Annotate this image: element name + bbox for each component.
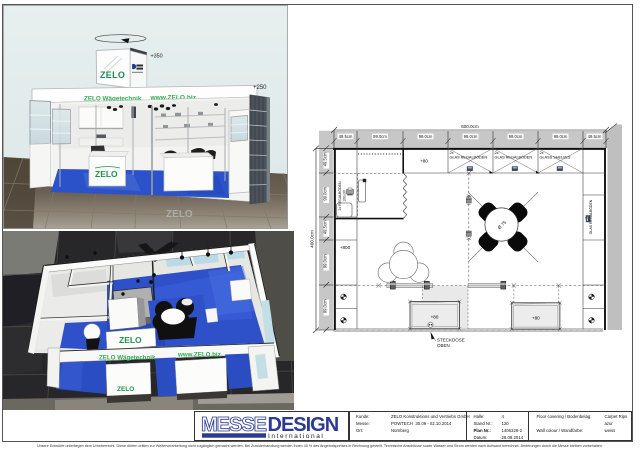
svg-text:ZELO: ZELO (117, 386, 134, 393)
svg-text:99.0cm: 99.0cm (322, 254, 327, 268)
svg-text:99.0cm: 99.0cm (322, 186, 327, 200)
svg-text:ZELO: ZELO (95, 169, 118, 179)
svg-text:ZELO: ZELO (166, 209, 193, 220)
svg-text:+350: +350 (151, 54, 163, 60)
svg-text:49.5cm: 49.5cm (588, 134, 602, 139)
svg-text:GLASS SHELVES: GLASS SHELVES (540, 155, 571, 159)
svg-text:49.5cm: 49.5cm (322, 152, 327, 166)
svg-text:ZELO: ZELO (119, 335, 142, 345)
svg-text:+80: +80 (431, 315, 439, 320)
svg-text:400.0cm: 400.0cm (310, 230, 315, 248)
svg-text:49.5cm: 49.5cm (322, 220, 327, 234)
svg-text:99.0cm: 99.0cm (419, 134, 433, 139)
svg-text:2x REGALBÖDEN: 2x REGALBÖDEN (338, 181, 342, 210)
svg-text:99.0cm: 99.0cm (322, 299, 327, 313)
svg-text:OBEN: OBEN (437, 343, 450, 348)
svg-text:ZELO: ZELO (100, 70, 125, 80)
svg-text:+250: +250 (253, 85, 267, 91)
svg-text:GLAS REGALBÖDEN: GLAS REGALBÖDEN (450, 155, 488, 159)
svg-text:600.0cm: 600.0cm (461, 124, 479, 129)
svg-text:ZELO Wägetechnik: ZELO Wägetechnik (99, 355, 156, 362)
svg-text:MESSE: MESSE (201, 414, 267, 436)
svg-text:49.5cm: 49.5cm (339, 134, 353, 139)
svg-text:2x: 2x (540, 151, 544, 155)
svg-text:www.ZELO.biz: www.ZELO.biz (177, 352, 221, 359)
svg-text:International: International (268, 433, 324, 440)
svg-text:GLAS REGALBÖDEN: GLAS REGALBÖDEN (589, 199, 593, 234)
svg-text:+800: +800 (340, 245, 351, 250)
svg-text:99.0cm: 99.0cm (373, 134, 387, 139)
svg-text:100x30: 100x30 (343, 190, 347, 202)
svg-text:+80: +80 (420, 159, 428, 164)
svg-text:2x: 2x (585, 215, 589, 219)
svg-text:2x: 2x (495, 151, 499, 155)
svg-text:+80: +80 (532, 316, 540, 321)
svg-text:99.0cm: 99.0cm (509, 134, 523, 139)
svg-text:99.0cm: 99.0cm (554, 134, 568, 139)
svg-text:STECKDOSE: STECKDOSE (437, 338, 465, 343)
svg-text:99.0cm: 99.0cm (464, 134, 478, 139)
svg-text:2x: 2x (450, 151, 454, 155)
svg-text:GLAS REGALBÖDEN: GLAS REGALBÖDEN (495, 155, 533, 159)
